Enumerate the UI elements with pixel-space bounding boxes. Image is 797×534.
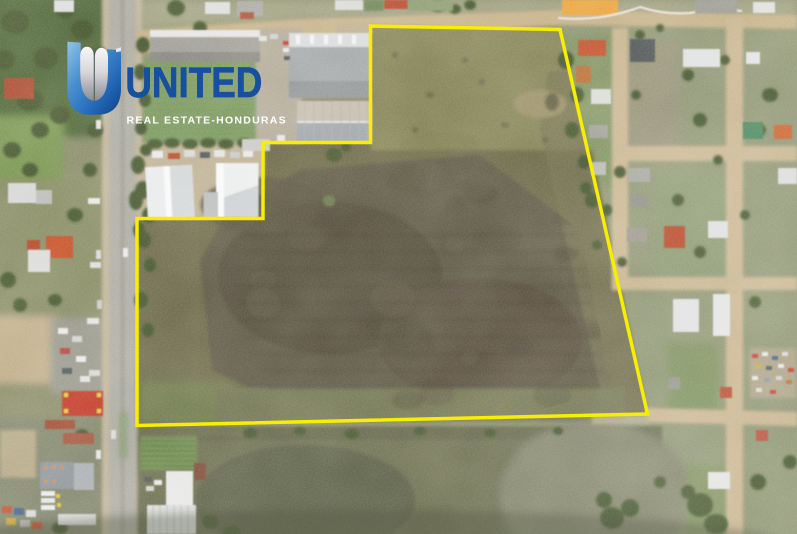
svg-text:REAL ESTATE-HONDURAS: REAL ESTATE-HONDURAS <box>127 115 287 127</box>
svg-text:UNITED: UNITED <box>125 59 262 106</box>
